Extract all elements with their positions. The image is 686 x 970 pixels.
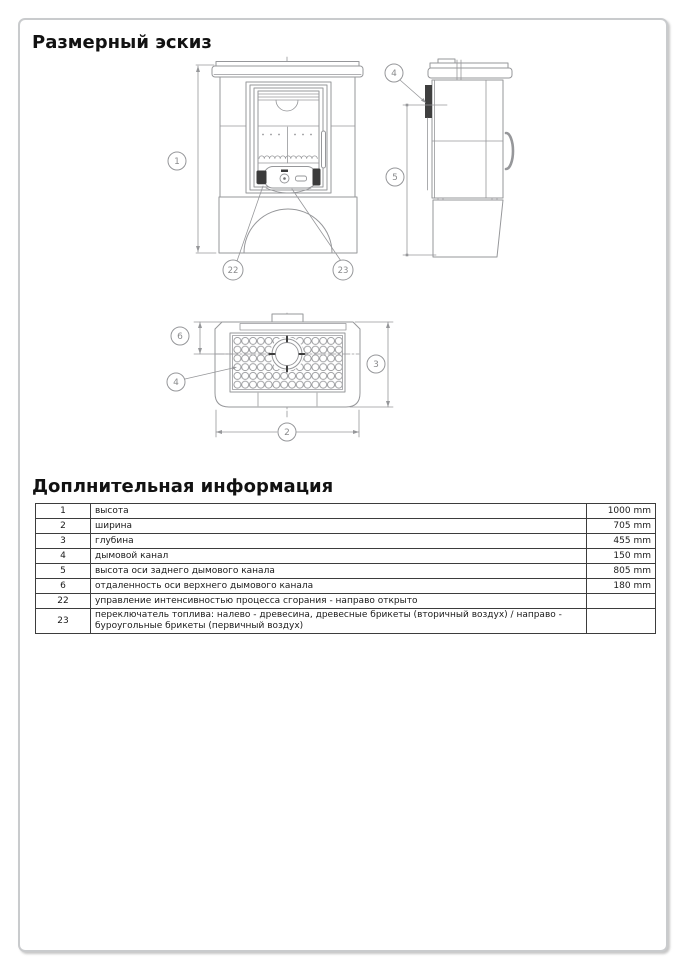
row-number: 22	[36, 594, 91, 609]
row-number: 5	[36, 564, 91, 579]
row-description: переключатель топлива: налево - древесин…	[91, 609, 587, 634]
stove-base-side	[433, 200, 503, 257]
row-value: 455 mm	[587, 534, 656, 549]
row-description: ширина	[91, 519, 587, 534]
svg-text:22: 22	[228, 266, 239, 276]
callout-6: 6	[171, 327, 189, 345]
table-row: 5 высота оси заднего дымового канала 805…	[36, 564, 656, 579]
callout-2: 2	[278, 423, 296, 441]
side-door-handle	[506, 133, 513, 169]
row-number: 2	[36, 519, 91, 534]
table-row: 22 управление интенсивностью процесса сг…	[36, 594, 656, 609]
table-row: 3 глубина 455 mm	[36, 534, 656, 549]
row-number: 6	[36, 579, 91, 594]
row-value: 180 mm	[587, 579, 656, 594]
table-row: 23 переключатель топлива: налево - древе…	[36, 609, 656, 634]
dimension-height	[196, 65, 216, 253]
section-title: Доплнительная информация	[32, 476, 333, 497]
row-description: отдаленность оси верхнего дымового канал…	[91, 579, 587, 594]
row-number: 23	[36, 609, 91, 634]
dimensional-sketch: 1 22 23	[20, 55, 666, 460]
row-description: дымовой канал	[91, 549, 587, 564]
row-number: 1	[36, 504, 91, 519]
stove-base-front	[219, 197, 357, 253]
svg-text:6: 6	[177, 332, 183, 342]
table-row: 4 дымовой канал 150 mm	[36, 549, 656, 564]
svg-text:4: 4	[391, 69, 397, 79]
row-description: высота	[91, 504, 587, 519]
document-page: Размерный эскиз	[18, 18, 668, 952]
top-view: 6 4 3	[167, 313, 393, 441]
front-view: 1 22 23	[168, 57, 363, 280]
table-row: 1 высота 1000 mm	[36, 504, 656, 519]
svg-text:1: 1	[174, 157, 180, 167]
callout-23: 23	[333, 260, 353, 280]
svg-text:5: 5	[392, 173, 398, 183]
row-description: глубина	[91, 534, 587, 549]
row-value: 705 mm	[587, 519, 656, 534]
svg-text:2: 2	[284, 428, 290, 438]
callout-3: 3	[367, 355, 385, 373]
callout-5: 5	[386, 168, 404, 186]
row-description: высота оси заднего дымового канала	[91, 564, 587, 579]
table-row: 6 отдаленность оси верхнего дымового кан…	[36, 579, 656, 594]
rear-flue-collar	[425, 85, 432, 118]
callout-1: 1	[168, 152, 186, 170]
svg-text:4: 4	[173, 378, 179, 388]
row-value	[587, 594, 656, 609]
callout-22: 22	[223, 260, 243, 280]
table-row: 2 ширина 705 mm	[36, 519, 656, 534]
svg-text:3: 3	[373, 360, 379, 370]
row-value: 150 mm	[587, 549, 656, 564]
row-value	[587, 609, 656, 634]
svg-text:23: 23	[338, 266, 349, 276]
callout-4-side: 4	[385, 64, 403, 82]
row-value: 805 mm	[587, 564, 656, 579]
row-number: 4	[36, 549, 91, 564]
info-table: 1 высота 1000 mm 2 ширина 705 mm 3 глуби…	[35, 503, 656, 634]
callout-4-top: 4	[167, 373, 185, 391]
row-description: управление интенсивностью процесса сгора…	[91, 594, 587, 609]
row-value: 1000 mm	[587, 504, 656, 519]
door-handle	[322, 131, 326, 168]
page-title: Размерный эскиз	[32, 32, 212, 53]
row-number: 3	[36, 534, 91, 549]
side-view: 4 5	[385, 59, 513, 257]
